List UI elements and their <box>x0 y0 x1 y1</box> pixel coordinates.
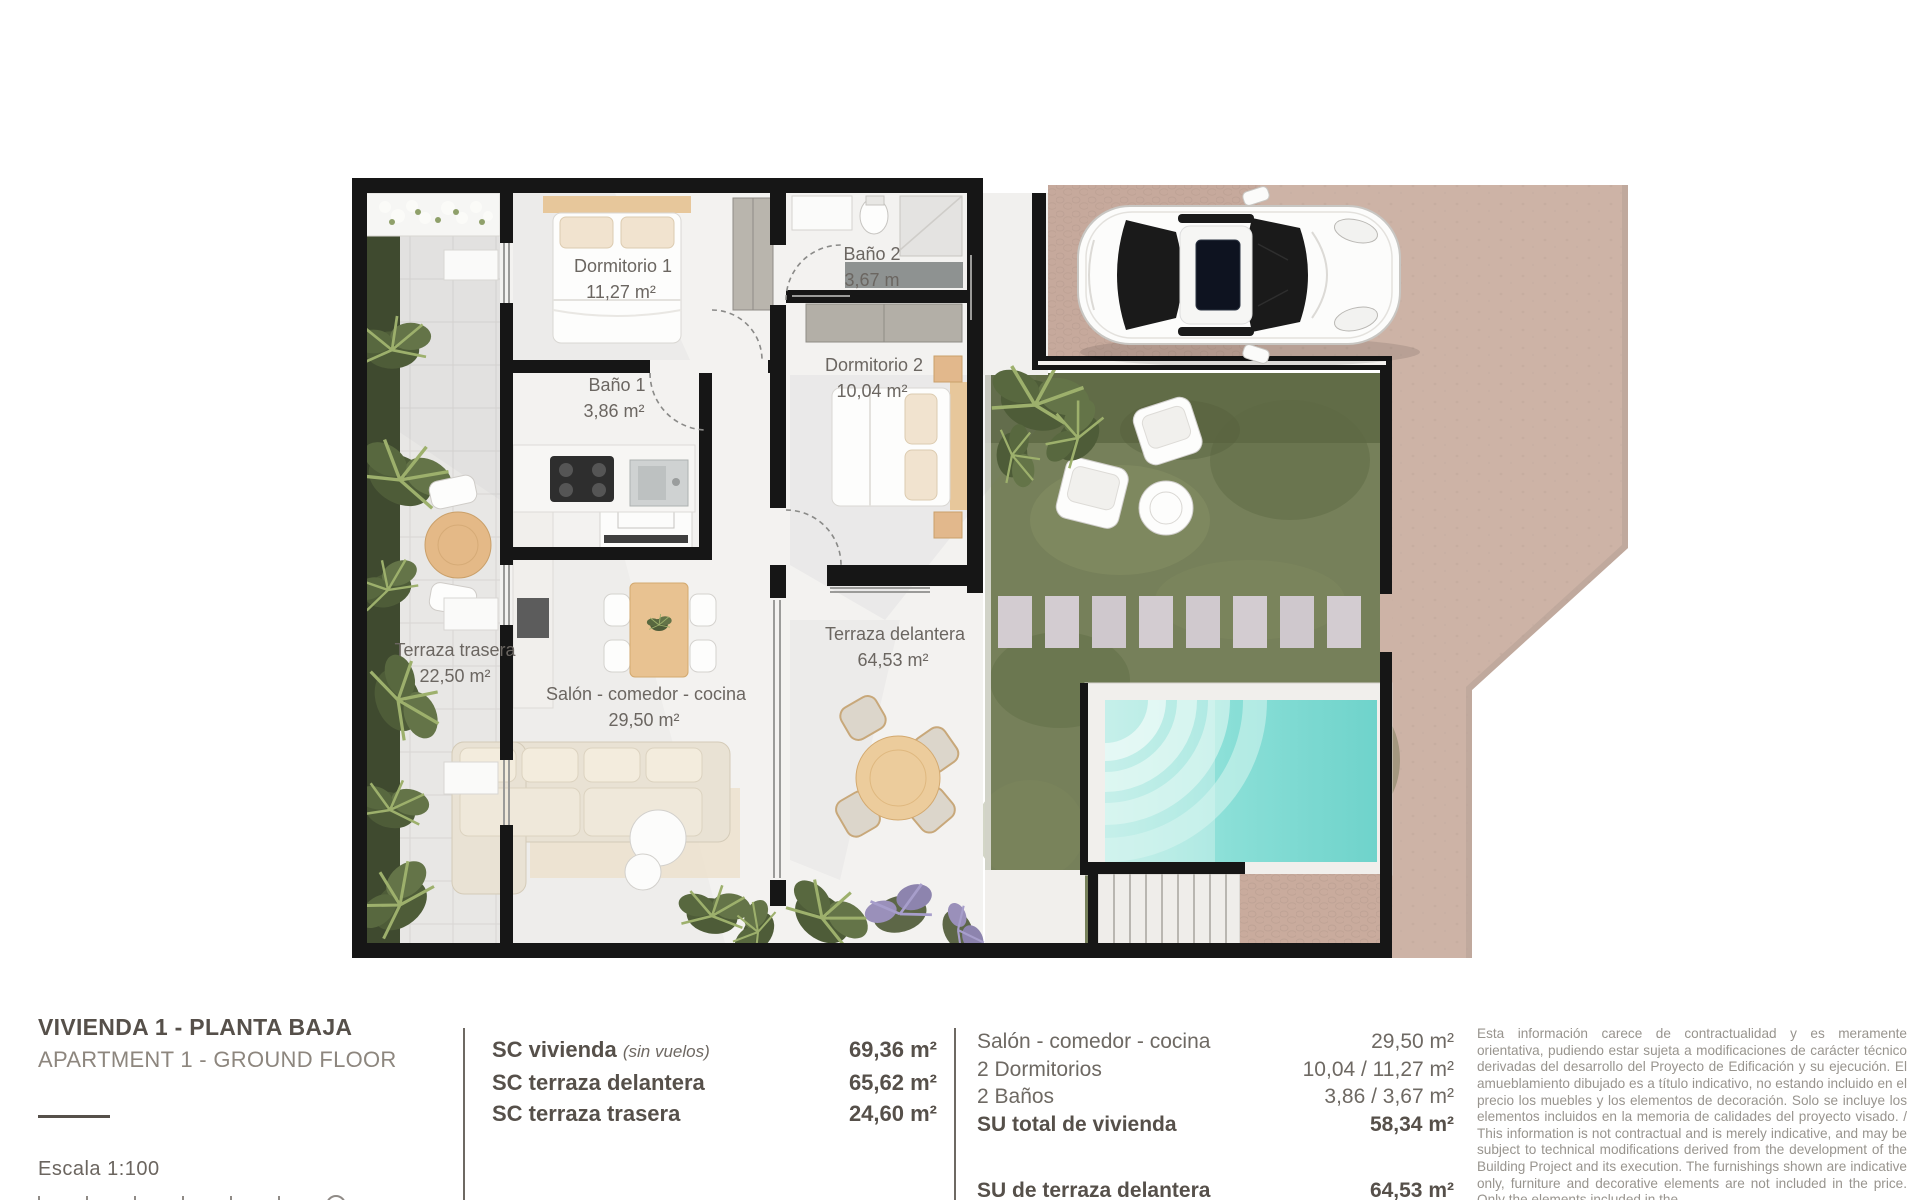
row-label-text: SC terraza delantera <box>492 1070 705 1095</box>
row-note: (sin vuelos) <box>623 1042 710 1061</box>
room-area: 64,53 m² <box>857 650 928 670</box>
row-value: 58,34 m² <box>1370 1111 1454 1139</box>
pool-walkway <box>985 870 1085 945</box>
room-area: 3,67 m <box>844 270 899 290</box>
room-area: 22,50 m² <box>419 666 490 686</box>
built-surface-table: SC vivienda (sin vuelos) 69,36 m² SC ter… <box>492 1034 937 1129</box>
sunroof <box>1196 240 1240 310</box>
row-value: 24,60 m² <box>849 1098 937 1129</box>
row-label: SC vivienda (sin vuelos) <box>492 1034 710 1067</box>
compass-icon <box>326 1195 346 1200</box>
table-row: SU total de vivienda 58,34 m² <box>977 1111 1454 1139</box>
page-subtitle: APARTMENT 1 - GROUND FLOOR <box>38 1047 438 1073</box>
table-row: SU de terraza delantera 64,53 m² <box>977 1177 1454 1200</box>
footer-divider <box>463 1028 465 1200</box>
title-block: VIVIENDA 1 - PLANTA BAJA APARTMENT 1 - G… <box>38 1014 438 1181</box>
row-label: SU de terraza delantera <box>977 1177 1210 1200</box>
legal-disclaimer: Esta información carece de contractualid… <box>1477 1026 1907 1200</box>
table-row: Salón - comedor - cocina 29,50 m² <box>977 1028 1454 1056</box>
row-value: 29,50 m² <box>1371 1028 1454 1056</box>
row-value: 69,36 m² <box>849 1034 937 1067</box>
room-label: Dormitorio 1 <box>574 256 672 276</box>
room-area: 10,04 m² <box>836 381 907 401</box>
row-value: 64,53 m² <box>1370 1177 1454 1200</box>
useful-surface-table: Salón - comedor - cocina 29,50 m² 2 Dorm… <box>977 1028 1454 1200</box>
table-row: SC terraza delantera 65,62 m² <box>492 1067 937 1098</box>
coffee-table <box>625 854 661 890</box>
footer-divider <box>954 1028 956 1200</box>
table-row: SC terraza trasera 24,60 m² <box>492 1098 937 1129</box>
row-value: 10,04 / 11,27 m² <box>1303 1056 1454 1084</box>
oven <box>517 598 549 638</box>
row-label: Salón - comedor - cocina <box>977 1028 1210 1056</box>
table-row: 2 Dormitorios 10,04 / 11,27 m² <box>977 1056 1454 1084</box>
room-label: Terraza trasera <box>394 640 516 660</box>
page: Dormitorio 1 11,27 m² Baño 2 3,67 m Baño… <box>0 0 1920 1200</box>
scale-label: Escala 1:100 <box>38 1158 438 1181</box>
room-area: 11,27 m² <box>586 282 656 302</box>
garden-stairs <box>1098 874 1240 947</box>
room-label: Dormitorio 2 <box>825 355 923 375</box>
row-label: SU total de vivienda <box>977 1111 1177 1139</box>
row-label-text: SC vivienda <box>492 1037 617 1062</box>
row-label: 2 Baños <box>977 1083 1054 1111</box>
garden-gate <box>1380 594 1392 652</box>
towel-bar <box>604 535 688 543</box>
divider-dash <box>38 1115 110 1118</box>
room-area: 3,86 m² <box>583 401 644 421</box>
nightstand <box>934 356 962 382</box>
row-label: SC terraza delantera <box>492 1067 705 1098</box>
table-row: 2 Baños 3,86 / 3,67 m² <box>977 1083 1454 1111</box>
room-label: Baño 1 <box>588 375 645 395</box>
row-value: 65,62 m² <box>849 1067 937 1098</box>
row-label: SC terraza trasera <box>492 1098 680 1129</box>
car <box>1078 185 1420 367</box>
table-row: SC vivienda (sin vuelos) 69,36 m² <box>492 1034 937 1067</box>
row-label-text: SC terraza trasera <box>492 1101 680 1126</box>
room-label: Baño 2 <box>843 244 900 264</box>
scale-bar <box>38 1193 368 1200</box>
flower-planter <box>363 193 500 236</box>
room-label: Terraza delantera <box>825 624 966 644</box>
wardrobe-dormitorio-1 <box>733 198 773 310</box>
room-area: 29,50 m² <box>608 710 679 730</box>
row-value: 3,86 / 3,67 m² <box>1324 1083 1454 1111</box>
page-title: VIVIENDA 1 - PLANTA BAJA <box>38 1014 438 1041</box>
nightstand <box>934 512 962 538</box>
row-label: 2 Dormitorios <box>977 1056 1102 1084</box>
pebble-patio <box>1240 874 1380 947</box>
floor-plan: Dormitorio 1 11,27 m² Baño 2 3,67 m Baño… <box>0 0 1920 1005</box>
room-label: Salón - comedor - cocina <box>546 684 747 704</box>
wardrobe-dormitorio-2 <box>806 304 962 342</box>
